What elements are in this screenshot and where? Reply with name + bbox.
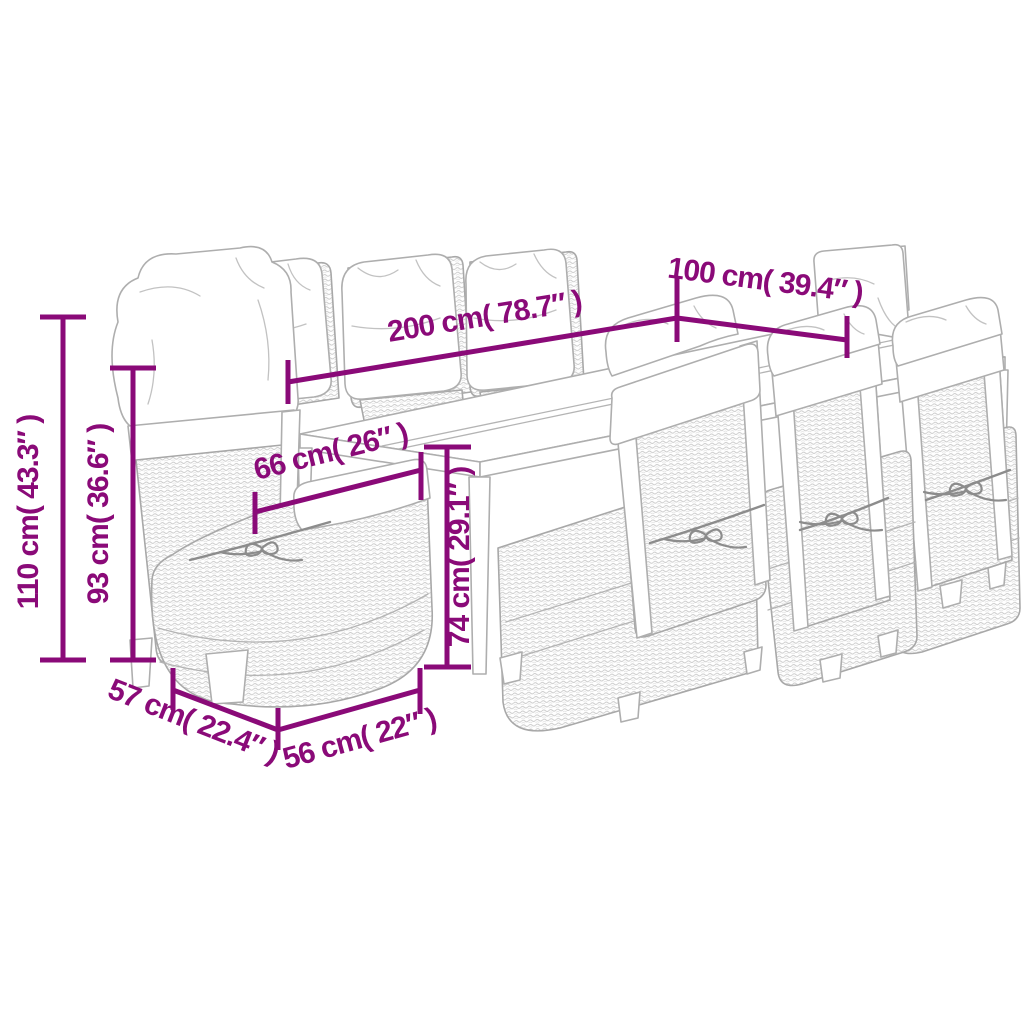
product-dimension-diagram: 200 cm( 78.7″ ) 100 cm( 39.4″ ) 110 cm( … <box>0 0 1024 1024</box>
dim-93-label: 93 cm( 36.6″ ) <box>82 424 115 604</box>
dim-110-label: 110 cm( 43.3″ ) <box>12 415 45 610</box>
left-chair-pillow <box>112 247 298 432</box>
dim-56-label: 56 cm( 22″ ) <box>279 702 440 776</box>
dim-table-height: 74 cm( 29.1″ ) <box>424 447 476 667</box>
dim-chair-height: 110 cm( 43.3″ ) <box>12 317 86 660</box>
dim-110-line <box>40 317 86 660</box>
dim-74-label: 74 cm( 29.1″ ) <box>443 467 476 647</box>
